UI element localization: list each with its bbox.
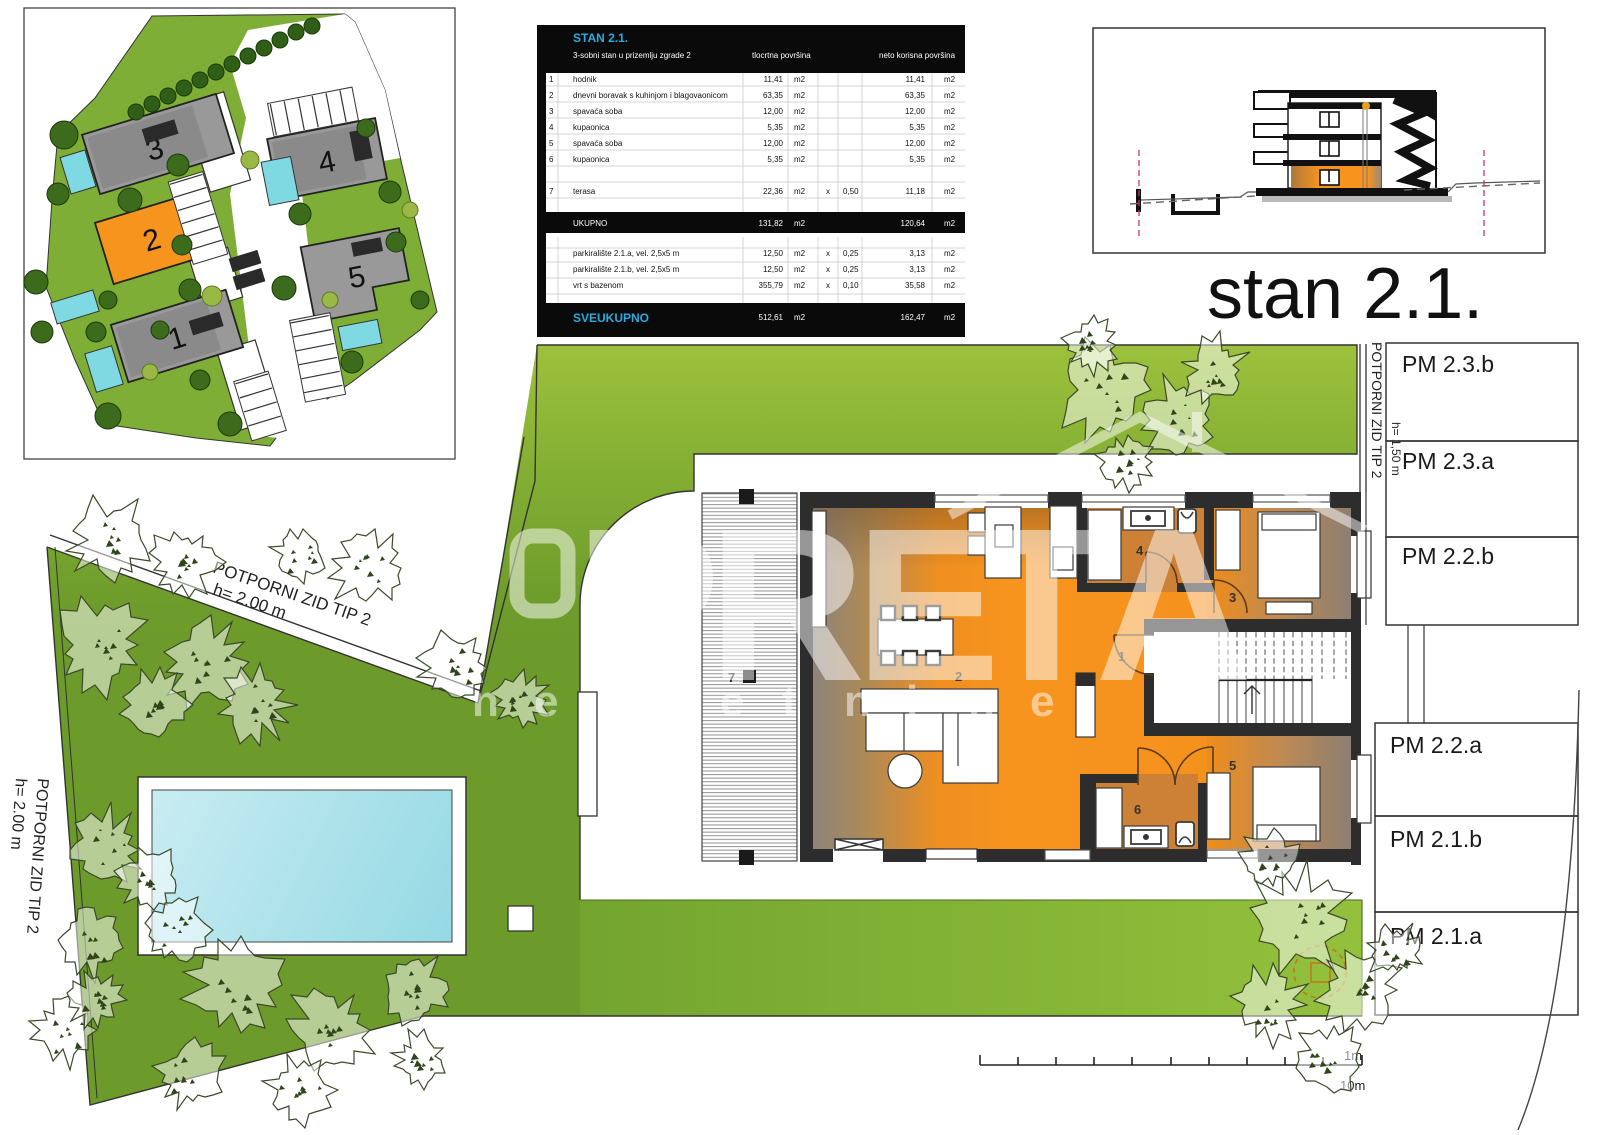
svg-text:6: 6 [1134,802,1141,817]
svg-text:5: 5 [1229,758,1236,773]
svg-text:vrt s bazenom: vrt s bazenom [573,281,624,290]
svg-text:stan 2.1.: stan 2.1. [1207,254,1483,334]
svg-text:12,00: 12,00 [905,107,926,116]
svg-text:m2: m2 [944,265,956,274]
svg-text:63,35: 63,35 [763,91,784,100]
svg-text:m2: m2 [944,91,956,100]
svg-text:5,35: 5,35 [767,155,783,164]
svg-text:12,00: 12,00 [763,107,784,116]
svg-text:m2: m2 [794,219,806,228]
svg-text:parkiralište 2.1.a, vel. 2,5x5: parkiralište 2.1.a, vel. 2,5x5 m [573,249,680,258]
svg-text:5,35: 5,35 [909,123,925,132]
svg-text:m2: m2 [794,187,806,196]
svg-text:12,00: 12,00 [763,139,784,148]
svg-text:STAN 2.1.: STAN 2.1. [573,31,628,45]
svg-text:m2: m2 [794,75,806,84]
svg-text:5,35: 5,35 [909,155,925,164]
svg-text:x: x [826,249,830,258]
svg-text:m2: m2 [944,313,956,322]
svg-text:hodnik: hodnik [573,75,598,84]
svg-text:m2: m2 [944,281,956,290]
svg-text:m2: m2 [794,107,806,116]
svg-text:2: 2 [549,91,554,100]
svg-text:12,50: 12,50 [763,265,784,274]
svg-text:spavaća soba: spavaća soba [573,107,623,116]
svg-text:m2: m2 [944,219,956,228]
svg-text:m2: m2 [794,265,806,274]
svg-text:SVEUKUPNO: SVEUKUPNO [573,311,649,325]
svg-text:m2: m2 [794,281,806,290]
svg-text:m2: m2 [794,123,806,132]
svg-text:355,79: 355,79 [759,281,784,290]
svg-text:63,35: 63,35 [905,91,926,100]
svg-text:12,00: 12,00 [905,139,926,148]
svg-text:0,10: 0,10 [843,281,859,290]
svg-text:5,35: 5,35 [767,123,783,132]
svg-text:7: 7 [549,187,554,196]
svg-text:162,47: 162,47 [901,313,926,322]
svg-text:tlocrtna površina: tlocrtna površina [752,51,811,60]
svg-text:PM 2.3.a: PM 2.3.a [1402,448,1494,474]
svg-text:11,41: 11,41 [906,75,926,84]
svg-text:4: 4 [549,123,554,132]
svg-text:6: 6 [549,155,554,164]
svg-text:m2: m2 [794,249,806,258]
svg-text:131,82: 131,82 [759,219,784,228]
svg-text:neto korisna površina: neto korisna površina [879,51,956,60]
svg-text:m2: m2 [794,91,806,100]
svg-text:11,18: 11,18 [906,187,926,196]
svg-text:x: x [826,265,830,274]
svg-text:3,13: 3,13 [909,249,925,258]
svg-text:3: 3 [549,107,554,116]
svg-text:m2: m2 [944,187,956,196]
svg-text:m2: m2 [944,107,956,116]
svg-text:m2: m2 [794,139,806,148]
svg-text:dnevni boravak s kuhinjom i bl: dnevni boravak s kuhinjom i blagovaonico… [573,91,728,100]
svg-text:x: x [826,187,830,196]
svg-text:120,64: 120,64 [901,219,926,228]
svg-text:11,41: 11,41 [764,75,784,84]
svg-text:512,61: 512,61 [759,313,784,322]
svg-text:1: 1 [549,75,554,84]
svg-text:spavaća soba: spavaća soba [573,139,623,148]
svg-text:m2: m2 [794,313,806,322]
svg-text:m2: m2 [944,139,956,148]
svg-text:0,25: 0,25 [843,265,859,274]
svg-text:terasa: terasa [573,187,596,196]
svg-text:h= 1,50 m: h= 1,50 m [1389,422,1403,476]
svg-text:m2: m2 [944,249,956,258]
svg-text:kupaonica: kupaonica [573,123,610,132]
svg-text:35,58: 35,58 [905,281,926,290]
svg-text:PM 2.1.b: PM 2.1.b [1390,826,1482,852]
svg-text:parkiralište 2.1.b, vel. 2,5x5: parkiralište 2.1.b, vel. 2,5x5 m [573,265,680,274]
svg-text:m2: m2 [944,155,956,164]
svg-text:0,50: 0,50 [843,187,859,196]
svg-text:UKUPNO: UKUPNO [573,219,607,228]
svg-text:3-sobni stan u prizemlju zgrad: 3-sobni stan u prizemlju zgrade 2 [573,51,691,60]
svg-text:POTPORNI ZID TIP 2: POTPORNI ZID TIP 2 [1369,342,1385,479]
svg-text:kupaonica: kupaonica [573,155,610,164]
svg-text:PM 2.2.b: PM 2.2.b [1402,543,1494,569]
svg-text:x: x [826,281,830,290]
svg-text:m2: m2 [944,75,956,84]
svg-text:12,50: 12,50 [763,249,784,258]
svg-text:5: 5 [549,139,554,148]
svg-text:PM 2.3.b: PM 2.3.b [1402,351,1494,377]
svg-text:m2: m2 [794,155,806,164]
svg-text:PM 2.2.a: PM 2.2.a [1390,732,1482,758]
svg-text:0,25: 0,25 [843,249,859,258]
svg-text:3,13: 3,13 [909,265,925,274]
svg-text:22,36: 22,36 [763,187,784,196]
svg-text:m2: m2 [944,123,956,132]
